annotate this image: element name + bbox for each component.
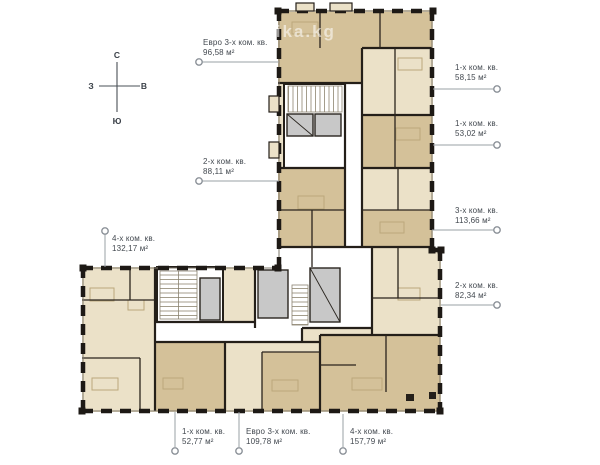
apartment-area-value: 88,11 м² bbox=[203, 167, 246, 177]
apartment-label-96-58[interactable]: Евро 3-х ком. кв. 96,58 м² bbox=[203, 38, 268, 57]
apartment-label-52-77[interactable]: 1-х ком. кв. 52,77 м² bbox=[182, 427, 225, 446]
apartment-type: 1-х ком. кв. bbox=[455, 63, 498, 73]
apartment-label-157-79[interactable]: 4-х ком. кв. 157,79 м² bbox=[350, 427, 393, 446]
apartment-label-113-66[interactable]: 3-х ком. кв. 113,66 м² bbox=[455, 206, 498, 225]
apartment-area-value: 132,17 м² bbox=[112, 244, 155, 254]
apartment-label-58-15[interactable]: 1-х ком. кв. 58,15 м² bbox=[455, 63, 498, 82]
apartment-type: Евро 3-х ком. кв. bbox=[203, 38, 268, 48]
leader-pin[interactable] bbox=[494, 302, 500, 308]
apartment-type: 3-х ком. кв. bbox=[455, 206, 498, 216]
leader-pin[interactable] bbox=[236, 448, 242, 454]
leader-pin[interactable] bbox=[196, 178, 202, 184]
floor-plan: С Ю З В bbox=[0, 0, 600, 465]
apartment-type: 1-х ком. кв. bbox=[455, 119, 498, 129]
apartment-label-53-02[interactable]: 1-х ком. кв. 53,02 м² bbox=[455, 119, 498, 138]
floor-plan-page: С Ю З В lika.kg Евро 3-х ком. кв. 96,58 … bbox=[0, 0, 600, 465]
compass-north-label: С bbox=[114, 50, 120, 60]
apartment-label-132-17[interactable]: 4-х ком. кв. 132,17 м² bbox=[112, 234, 155, 253]
apartment-area-value: 157,79 м² bbox=[350, 437, 393, 447]
apartment-type: 2-х ком. кв. bbox=[203, 157, 246, 167]
apartment-area-value: 113,66 м² bbox=[455, 216, 498, 226]
apartment-area-value: 109,78 м² bbox=[246, 437, 311, 447]
leader-pin[interactable] bbox=[340, 448, 346, 454]
apartment-area-value: 96,58 м² bbox=[203, 48, 268, 58]
leader-pin[interactable] bbox=[102, 228, 108, 234]
apartment-label-109-78[interactable]: Евро 3-х ком. кв. 109,78 м² bbox=[246, 427, 311, 446]
apartment-label-88-11[interactable]: 2-х ком. кв. 88,11 м² bbox=[203, 157, 246, 176]
leader-pin[interactable] bbox=[494, 86, 500, 92]
leader-pin[interactable] bbox=[494, 142, 500, 148]
apartment-type: 4-х ком. кв. bbox=[350, 427, 393, 437]
apartment-type: 4-х ком. кв. bbox=[112, 234, 155, 244]
compass-west-label: З bbox=[88, 81, 93, 91]
apartment-type: 1-х ком. кв. bbox=[182, 427, 225, 437]
compass-south-label: Ю bbox=[113, 116, 122, 126]
apartment-type: Евро 3-х ком. кв. bbox=[246, 427, 311, 437]
apartment-area-value: 82,34 м² bbox=[455, 291, 498, 301]
compass-rose: С Ю З В bbox=[88, 50, 147, 126]
leader-pin[interactable] bbox=[196, 59, 202, 65]
apartment-area-value: 58,15 м² bbox=[455, 73, 498, 83]
leader-pin[interactable] bbox=[172, 448, 178, 454]
apartment-area-value: 52,77 м² bbox=[182, 437, 225, 447]
apartment-label-82-34[interactable]: 2-х ком. кв. 82,34 м² bbox=[455, 281, 498, 300]
apartment-area-value: 53,02 м² bbox=[455, 129, 498, 139]
compass-east-label: В bbox=[141, 81, 147, 91]
leader-pin[interactable] bbox=[494, 227, 500, 233]
apartment-type: 2-х ком. кв. bbox=[455, 281, 498, 291]
